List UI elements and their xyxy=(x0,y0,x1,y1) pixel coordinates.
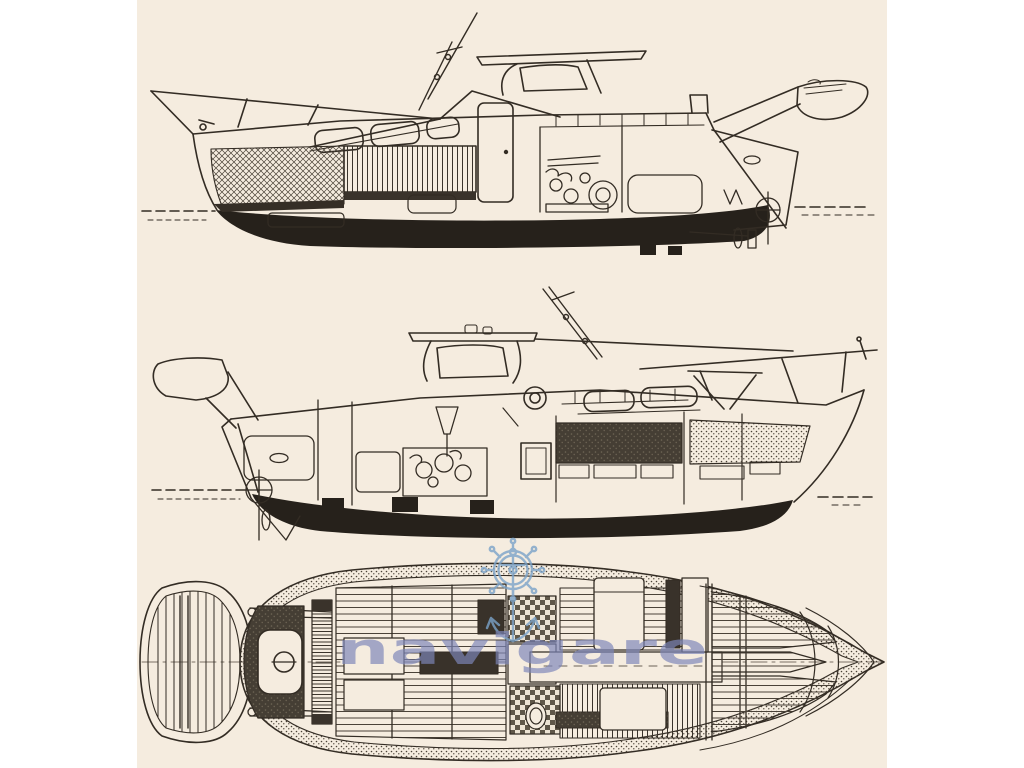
berth-lower xyxy=(600,688,666,730)
scanned-page: navigare xyxy=(0,0,1024,768)
boat-general-arrangement-drawing: navigare xyxy=(0,0,1024,768)
forward-berth xyxy=(690,420,810,464)
companionway-steps xyxy=(312,600,332,724)
saloon-slat-window xyxy=(344,146,476,192)
settee-upholstery xyxy=(556,423,682,463)
toilet xyxy=(526,703,546,729)
watermark-text: navigare xyxy=(336,624,708,675)
